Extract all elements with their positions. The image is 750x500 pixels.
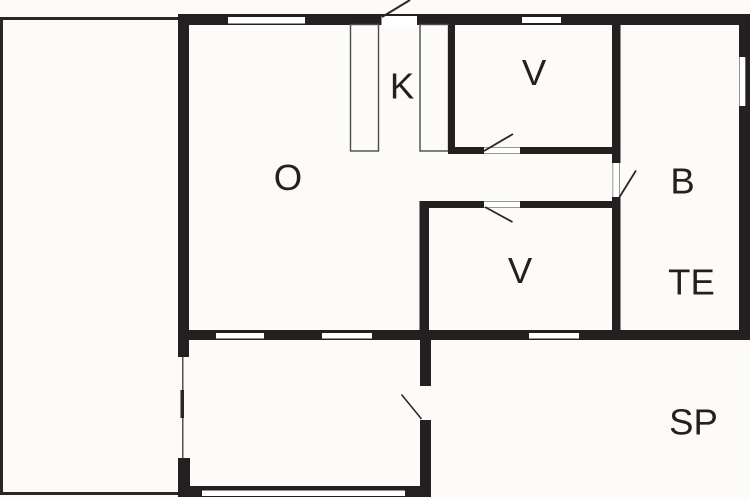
svg-text:V: V [522,52,547,93]
svg-text:V: V [508,250,533,291]
svg-text:O: O [274,157,302,198]
svg-text:B: B [670,161,694,202]
svg-text:SP: SP [669,402,718,443]
svg-text:K: K [390,66,414,107]
svg-text:TE: TE [668,262,715,303]
